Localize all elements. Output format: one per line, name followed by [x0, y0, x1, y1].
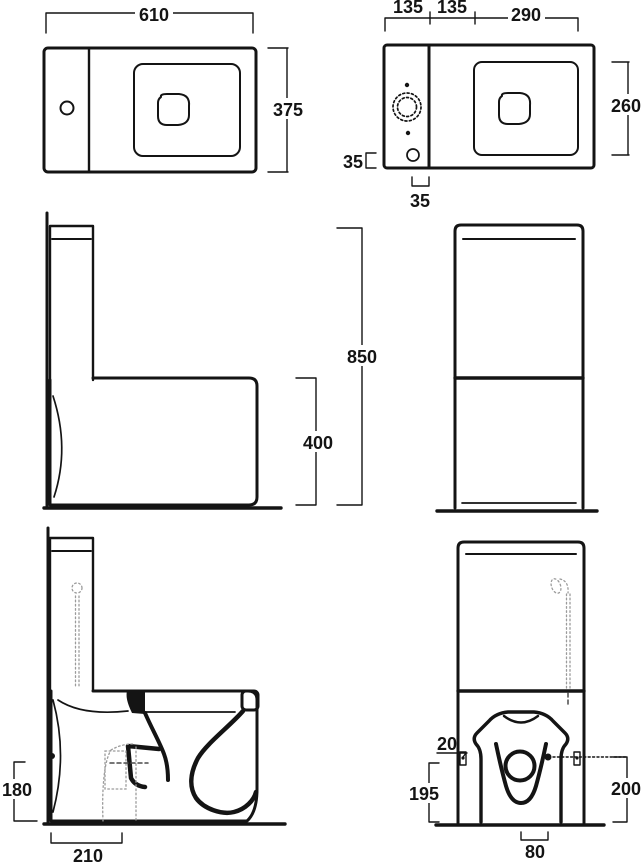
fixing-dot	[49, 753, 55, 759]
dim-label-seg-right: 290	[511, 5, 541, 25]
seat-outline	[474, 62, 578, 155]
fixing-dot-top	[405, 83, 409, 87]
view-front-elevation	[437, 225, 597, 511]
dim-label-width: 610	[139, 5, 169, 25]
dim-depth: 375	[268, 48, 306, 172]
view-side-elevation: 850 400	[44, 213, 381, 508]
dim-label-seg-left: 135	[393, 0, 423, 17]
shelf-curve	[58, 700, 128, 712]
view-plan-cistern: 135 135 290 260 35 35	[343, 0, 642, 211]
dim-total-height: 850	[337, 228, 381, 505]
pan-outline	[50, 378, 257, 505]
dim-side-offset: 35	[343, 152, 376, 172]
bowl-opening-outline	[158, 94, 189, 125]
dim-label-depth: 375	[273, 100, 303, 120]
cistern-outline	[50, 538, 93, 690]
dim-label-back-offset: 35	[410, 191, 430, 211]
trap-weir	[128, 746, 159, 787]
dim-label-side-offset: 35	[343, 152, 363, 172]
flush-button-hidden-inner	[398, 98, 417, 117]
dim-label-fixing-offset: 20	[437, 734, 457, 754]
flush-valve-hidden	[72, 583, 82, 593]
dim-fixing-offset: 20	[437, 734, 467, 757]
dim-outlet-height: 180	[0, 762, 37, 821]
fixing-dot	[545, 754, 552, 761]
technical-drawing-sheet: 610 375 135 135 290	[0, 0, 642, 864]
toilet-dimension-drawing: 610 375 135 135 290	[0, 0, 642, 864]
dim-label-pan-height: 400	[303, 433, 333, 453]
body-outline	[455, 225, 583, 508]
overflow-pipe-hidden	[560, 579, 570, 688]
dim-bowl-depth: 260	[608, 62, 642, 155]
view-section-rear: 20 195 200 80	[406, 542, 642, 862]
view-plan-top: 610 375	[44, 3, 306, 172]
dim-pan-height: 400	[296, 378, 337, 505]
dim-label-bowl-depth: 260	[611, 96, 641, 116]
overflow-inlet-hidden	[549, 577, 563, 594]
dim-label-seg-mid: 135	[437, 0, 467, 17]
dim-label-outlet-setout: 210	[73, 846, 103, 864]
dim-label-right-height: 200	[611, 779, 641, 799]
dim-right-height: 200	[607, 757, 642, 822]
supply-hole-circle	[407, 149, 419, 161]
dim-left-height: 195	[406, 763, 443, 822]
dim-width: 610	[46, 3, 253, 33]
cistern-outline	[50, 226, 93, 380]
pan-outline	[44, 48, 256, 172]
view-section-side: 180 210	[0, 528, 285, 864]
seat-outline	[134, 64, 240, 156]
pan-front-curve	[53, 396, 62, 497]
bowl-opening-outline	[499, 93, 530, 124]
dim-top-segments: 135 135 290	[385, 0, 578, 31]
bowl-right-wall-sump	[191, 711, 256, 813]
dim-outlet-setout: 210	[51, 833, 122, 864]
dim-back-offset: 35	[410, 177, 430, 211]
flush-button-circle	[61, 102, 74, 115]
fixing-dot-bottom	[406, 131, 410, 135]
dim-label-left-height: 195	[409, 784, 439, 804]
dim-label-outlet-height: 180	[2, 780, 32, 800]
flush-pipe-hidden	[76, 596, 80, 688]
dim-outlet-width: 80	[521, 832, 548, 862]
rim-section-left	[127, 691, 145, 714]
dim-label-outlet-width: 80	[525, 842, 545, 862]
outlet-circle	[506, 752, 535, 781]
dim-label-total-height: 850	[347, 347, 377, 367]
